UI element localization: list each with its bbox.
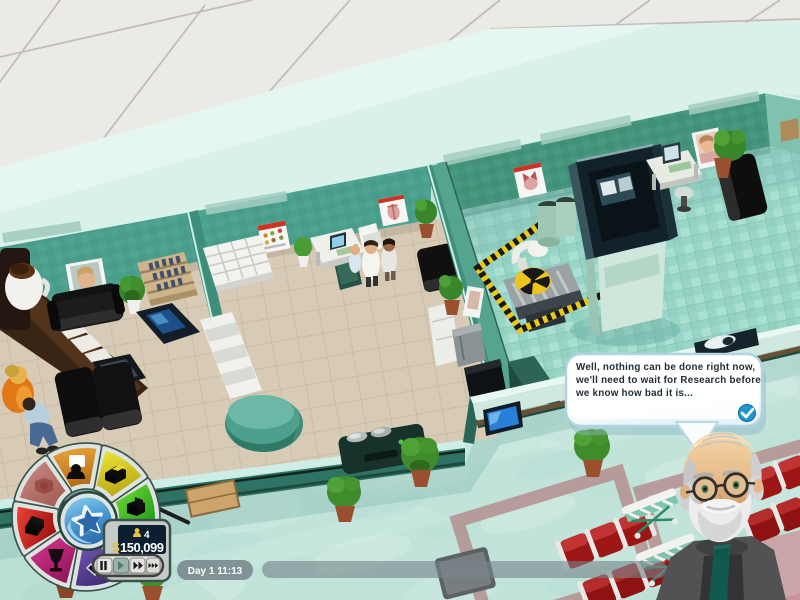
svg-text:150,099: 150,099 [120,540,164,555]
svg-text:we know how bad it is...: we know how bad it is... [575,388,693,399]
svg-text:$: $ [112,540,120,555]
svg-text:Well, nothing can be done righ: Well, nothing can be done right now, [576,362,755,373]
svg-text:Day 1 11:13: Day 1 11:13 [188,566,243,577]
svg-text:we'll need to wait for Researc: we'll need to wait for Research before [575,375,761,386]
